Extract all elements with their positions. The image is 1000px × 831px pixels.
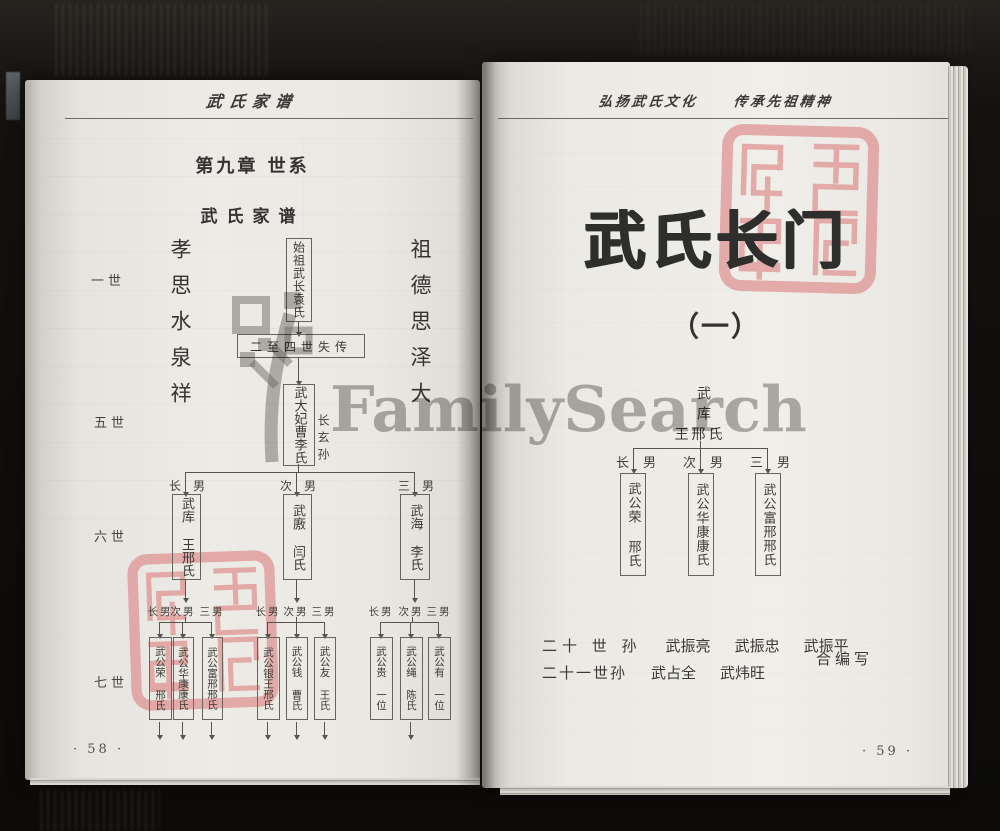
relation-label: 次男	[397, 604, 425, 619]
connector	[410, 622, 411, 635]
motto-left-column: 孝思水泉祥	[165, 238, 195, 428]
connector	[159, 622, 212, 623]
gen7-box: 武公钱 曹氏	[286, 637, 308, 720]
colophon-generation-21: 二十一世孙	[542, 662, 627, 683]
compiler-name: 武振忠	[735, 635, 780, 656]
running-header-left: 弘扬武氏文化	[598, 90, 700, 110]
background-streaks	[40, 790, 160, 831]
page-number: · 59 ·	[862, 744, 913, 759]
header-rule	[498, 118, 948, 119]
page-subtitle: （一）	[482, 305, 950, 345]
generation-label-5: 五世	[94, 412, 128, 431]
connector	[414, 579, 415, 599]
generation-label-1: 一世	[91, 270, 125, 289]
background-streaks	[640, 4, 970, 54]
book-cover-edge	[6, 72, 20, 120]
gen6-box: 武海 李氏	[400, 494, 430, 580]
connector	[185, 472, 414, 473]
motto-right-column: 祖德思泽大	[405, 238, 435, 428]
relation-label: 长男	[254, 604, 282, 619]
connector	[211, 722, 212, 736]
relation-label: 长男	[163, 477, 207, 494]
relation-label: 次男	[274, 477, 318, 494]
gen7-box: 武公银王邢氏	[257, 637, 280, 720]
gen7-box: 武公绳 陈氏	[400, 637, 423, 720]
connector	[267, 622, 268, 635]
header-rule	[65, 118, 473, 119]
connector	[182, 622, 183, 635]
connector	[185, 579, 186, 599]
gen6-box: 武库 王邢氏	[172, 494, 201, 580]
page-number: · 58 ·	[73, 742, 124, 757]
child-box: 武公荣 邢氏	[620, 473, 646, 576]
relation-label: 长男	[367, 604, 395, 619]
root-name: 武库	[693, 386, 713, 426]
relation-label: 三男	[198, 604, 226, 619]
gen7-box: 武公荣 邢氏	[149, 637, 172, 720]
connector	[298, 321, 299, 333]
colophon-generation-20: 二十 世 孙	[542, 635, 642, 656]
connector	[438, 622, 439, 635]
background-streaks	[55, 4, 270, 76]
page-title: 武氏长门	[482, 190, 950, 280]
relation-label: 三男	[743, 452, 791, 471]
connector	[298, 464, 299, 472]
right-page: 弘扬武氏文化 传承先祖精神 武氏长门 （一） 武库 王邢氏 长男 次男 三男 武…	[482, 62, 950, 788]
connector	[296, 622, 297, 635]
gen7-box: 武公友 王氏	[314, 637, 336, 720]
gen7-box: 武公贵 一位	[370, 637, 393, 720]
chapter-title: 第九章 世系	[25, 152, 480, 178]
colophon-suffix: 合编写	[816, 648, 873, 669]
running-header: 武氏家谱	[23, 88, 481, 112]
child-box: 武公华康康氏	[688, 473, 714, 576]
section-title: 武氏家谱	[25, 202, 480, 227]
founder-box: 始祖武长袁氏	[286, 238, 312, 322]
connector	[296, 579, 297, 599]
running-header: 弘扬武氏文化 传承先祖精神	[481, 90, 952, 110]
connector	[410, 722, 411, 736]
connector	[324, 722, 325, 736]
relation-label: 次男	[169, 604, 197, 619]
gen7-box: 武公华康康氏	[173, 637, 194, 720]
gen7-box: 武公富邢邢氏	[202, 637, 223, 720]
compiler-name: 武炜旺	[720, 662, 765, 683]
connector	[159, 622, 160, 635]
left-page: 武氏家谱 第九章 世系 武氏家谱 孝思水泉祥 祖德思泽大 一世 五世 六世 七世…	[25, 80, 480, 780]
running-header-right: 传承先祖精神	[733, 90, 835, 110]
connector	[211, 622, 212, 635]
connector	[380, 622, 381, 635]
connector	[267, 722, 268, 736]
generation-label-6: 六世	[94, 526, 128, 545]
relation-label: 三男	[392, 477, 436, 494]
connector	[159, 722, 160, 736]
relation-label: 次男	[282, 604, 310, 619]
relation-label: 次男	[676, 452, 724, 471]
connector	[298, 357, 299, 382]
child-box: 武公富邢邢氏	[755, 473, 781, 576]
compiler-name: 武振亮	[666, 635, 711, 656]
connector	[700, 441, 701, 448]
generation-label-7: 七世	[94, 672, 128, 691]
gen5-box: 武大妃曹李氏	[283, 384, 315, 466]
connector	[324, 622, 325, 635]
gen7-box: 武公有 一位	[428, 637, 451, 720]
connector	[182, 722, 183, 736]
connector	[296, 722, 297, 736]
relation-label: 三男	[425, 604, 453, 619]
book-photo-scene: 武氏家谱 第九章 世系 武氏家谱 孝思水泉祥 祖德思泽大 一世 五世 六世 七世…	[0, 0, 1000, 831]
lost-generations-box: 二至四世失传	[237, 334, 365, 358]
relation-label: 长男	[609, 452, 657, 471]
compiler-name: 武占全	[651, 662, 696, 683]
gen6-box: 武廒 闫氏	[283, 494, 312, 580]
gen5-note: 长玄孙	[315, 414, 332, 466]
relation-label: 三男	[310, 604, 338, 619]
